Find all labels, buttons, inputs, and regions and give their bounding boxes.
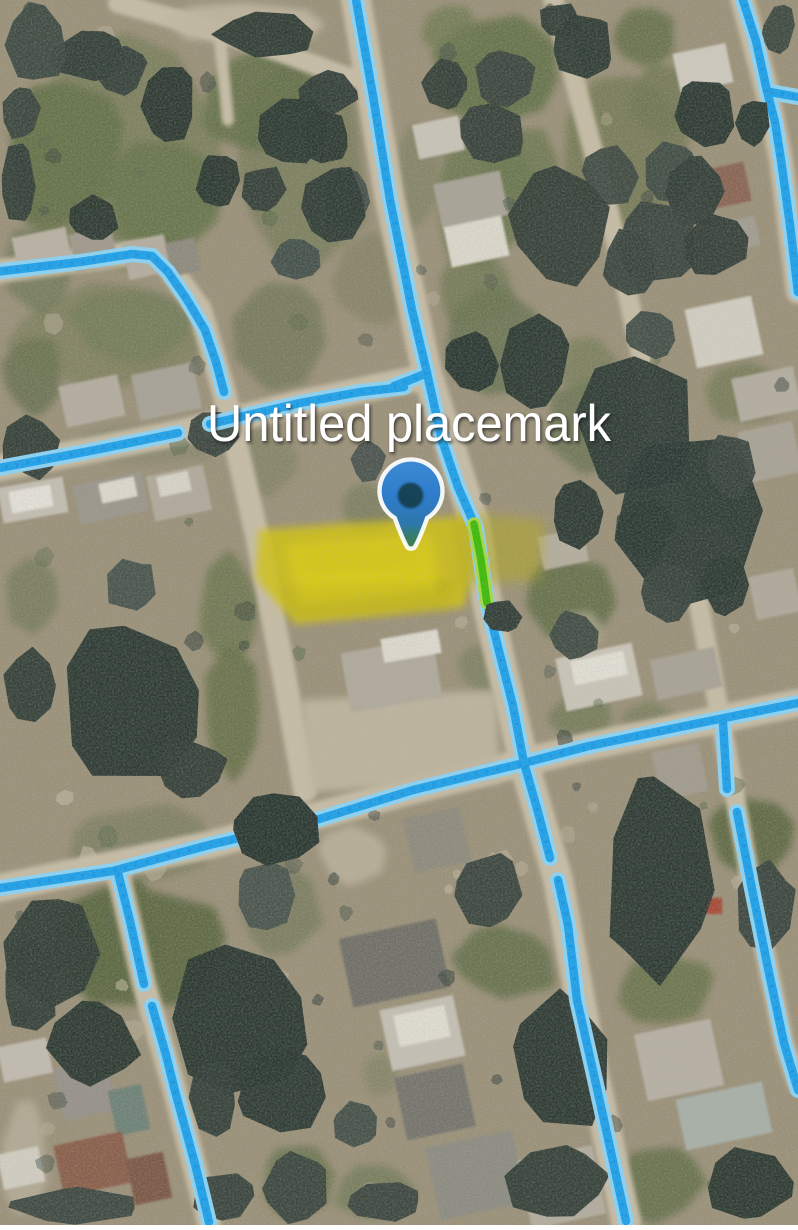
svg-text:Untitled placemark: Untitled placemark <box>207 395 612 453</box>
